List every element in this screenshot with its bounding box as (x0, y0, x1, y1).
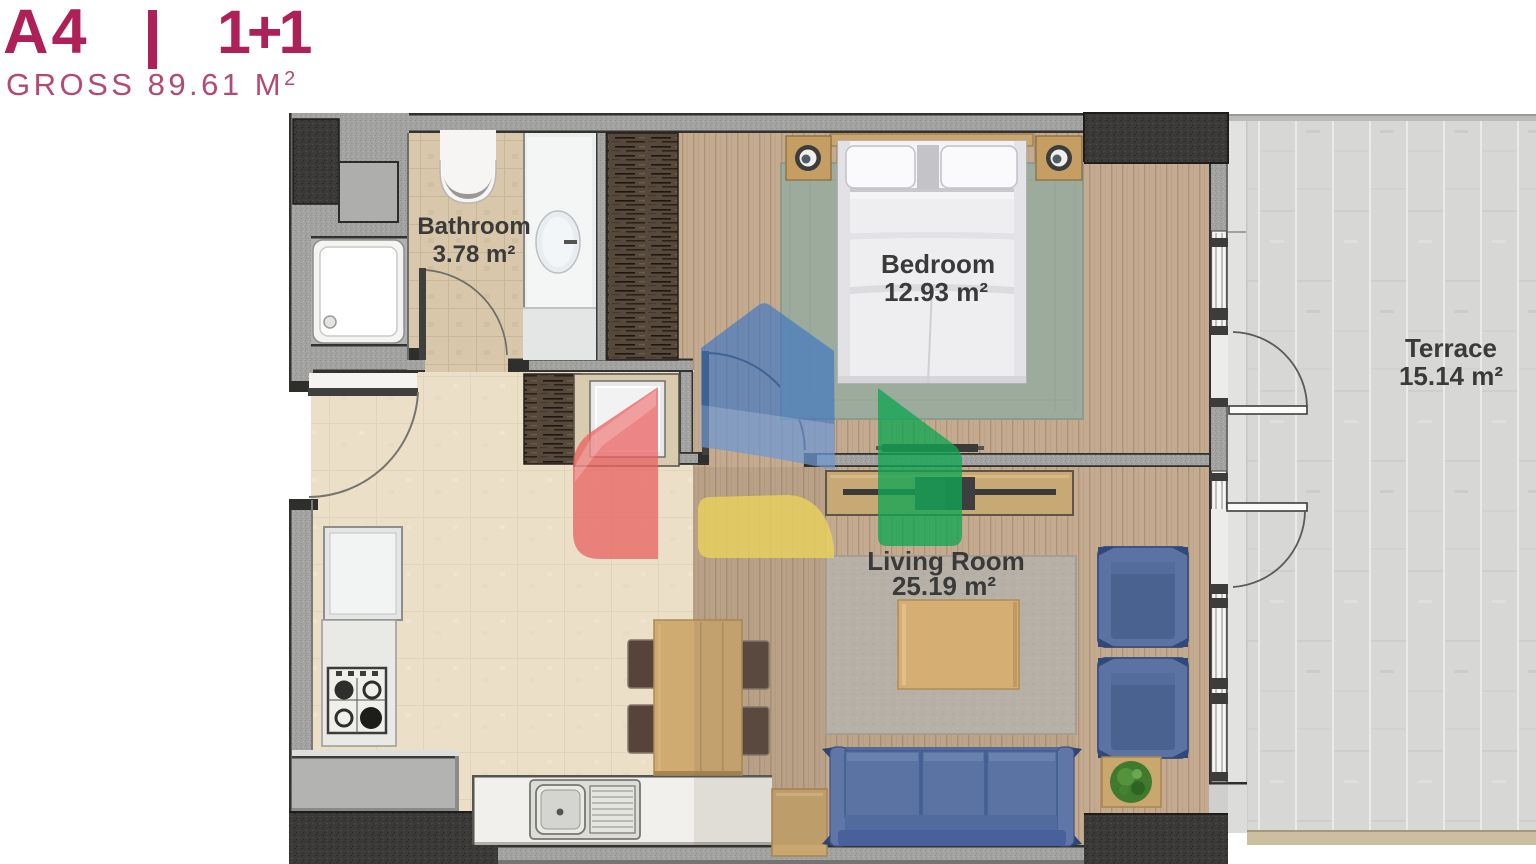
svg-text:Bedroom: Bedroom (881, 249, 995, 279)
svg-text:12.93 m²: 12.93 m² (884, 277, 988, 307)
svg-text:1+1: 1+1 (217, 0, 312, 66)
svg-text:3.78 m²: 3.78 m² (433, 241, 516, 268)
svg-text:GROSS 89.61 M2: GROSS 89.61 M2 (6, 67, 299, 102)
svg-text:A4: A4 (3, 0, 90, 67)
svg-text:15.14 m²: 15.14 m² (1399, 361, 1503, 391)
svg-text:25.19 m²: 25.19 m² (892, 571, 996, 601)
svg-text:Bathroom: Bathroom (417, 213, 530, 240)
svg-text:Terrace: Terrace (1405, 333, 1497, 363)
